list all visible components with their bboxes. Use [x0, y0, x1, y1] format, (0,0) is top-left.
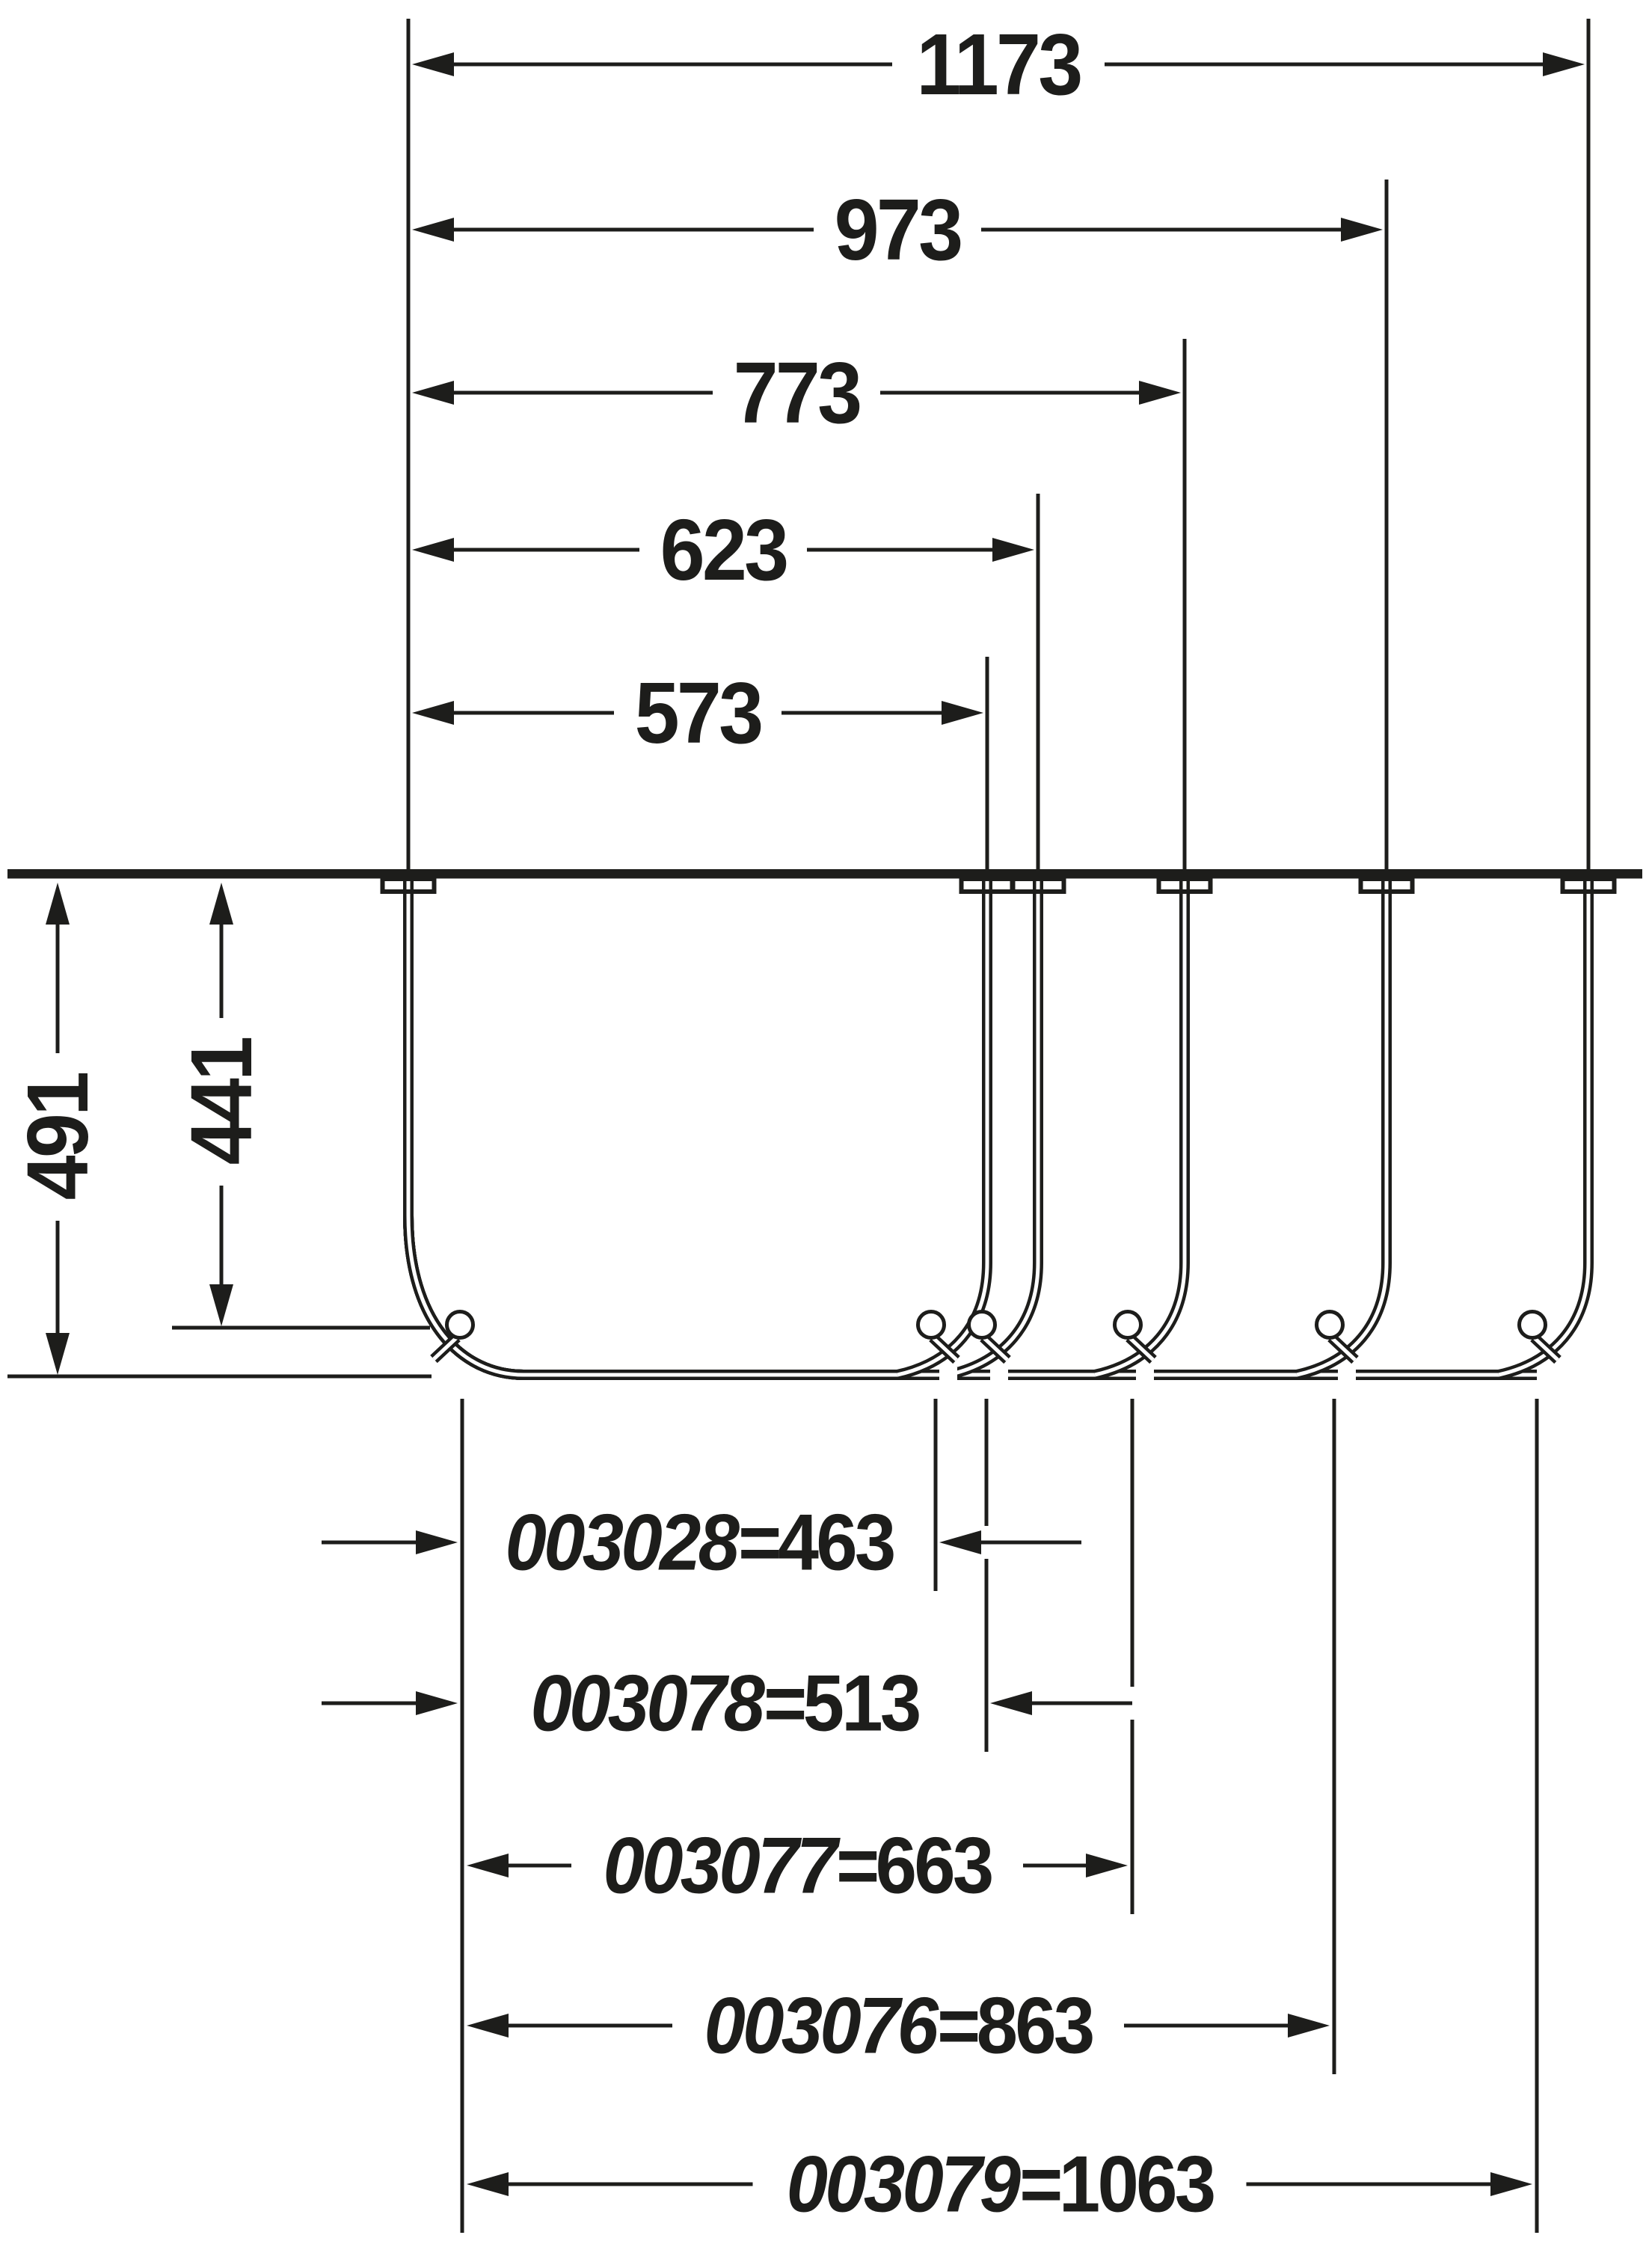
dimension-drawing: 1173 973 773 623 573 491 441 003028=463 … — [0, 0, 1652, 2244]
rail-length: 663 — [876, 1821, 992, 1910]
product-code: 003028 — [505, 1497, 737, 1587]
dim-label-623: 623 — [660, 506, 787, 593]
dim-label-573: 573 — [635, 669, 761, 756]
dim-label-1173: 1173 — [916, 21, 1080, 108]
product-code: 003079 — [786, 2139, 1018, 2229]
rail-length: 463 — [777, 1497, 893, 1587]
product-code: 003077 — [603, 1821, 835, 1910]
product-code: 003076 — [704, 1981, 936, 2070]
rail-length: 513 — [802, 1658, 918, 1748]
rail-length: 1063 — [1058, 2139, 1213, 2229]
equals-sign: = — [1018, 2139, 1058, 2229]
dim-label-973: 973 — [835, 186, 961, 273]
rail-length: 863 — [977, 1981, 1093, 2070]
equals-sign: = — [936, 1981, 976, 2070]
dim-label-491: 491 — [14, 1074, 101, 1201]
equals-sign: = — [762, 1658, 802, 1748]
dim-label-773: 773 — [734, 349, 860, 436]
dim-label-003077-663: 003077=663 — [603, 1826, 991, 1906]
dim-label-003078-513: 003078=513 — [530, 1664, 918, 1744]
equals-sign: = — [737, 1497, 777, 1587]
product-code: 003078 — [530, 1658, 762, 1748]
dim-label-003028-463: 003028=463 — [505, 1503, 893, 1583]
dim-label-441: 441 — [178, 1039, 265, 1165]
dim-label-003076-863: 003076=863 — [704, 1986, 1092, 2066]
dim-label-003079-1063: 003079=1063 — [786, 2145, 1213, 2225]
equals-sign: = — [835, 1821, 875, 1910]
